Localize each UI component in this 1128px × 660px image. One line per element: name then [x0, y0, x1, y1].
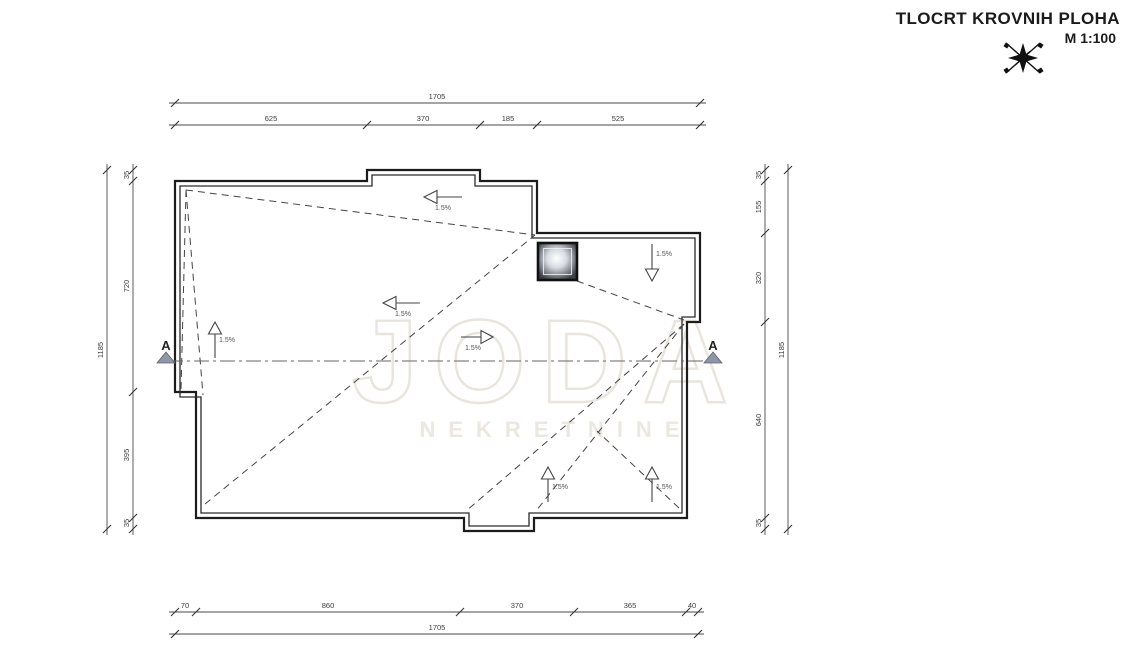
slope-arrow-up-icon: 1.5%	[646, 467, 672, 502]
drawing-scale: M 1:100	[1065, 30, 1117, 46]
skylight	[538, 243, 577, 280]
roof-plan-sheet: JODA NEKRETNINE TLOCRT KROVNIH PLOHA M 1…	[0, 0, 1128, 660]
dim-right-seg: 155	[754, 201, 763, 214]
dimension-bottom: 70 860 370 365 40 1705	[169, 601, 704, 638]
title-block: TLOCRT KROVNIH PLOHA M 1:100	[896, 9, 1120, 73]
slope-label: 1.5%	[435, 205, 451, 212]
slope-arrow-up-icon: 1.5%	[209, 322, 235, 358]
dim-left-seg: 720	[122, 280, 131, 293]
dim-right-seg: 320	[754, 272, 763, 285]
dim-right-seg: 35	[754, 519, 763, 527]
dim-bottom-seg: 40	[688, 601, 696, 610]
section-marker-left-label: A	[161, 338, 171, 353]
dim-left-seg: 35	[122, 171, 131, 179]
slope-arrow-down-icon: 1.5%	[646, 244, 672, 281]
dim-left-seg: 395	[122, 449, 131, 462]
slope-arrow-up-icon: 1.5%	[542, 467, 568, 502]
dim-right-overall: 1185	[777, 342, 786, 358]
slope-label: 1.5%	[552, 484, 568, 491]
section-marker-right-label: A	[708, 338, 718, 353]
valley-line	[181, 190, 186, 390]
dim-right-seg: 35	[754, 171, 763, 179]
dim-bottom-seg: 370	[511, 601, 524, 610]
valley-line	[186, 190, 203, 395]
compass-north-icon	[1004, 43, 1043, 73]
dim-top-overall: 1705	[429, 92, 446, 101]
valley-line	[186, 190, 535, 235]
hip-line	[597, 431, 679, 508]
roof-plan-drawing: JODA NEKRETNINE TLOCRT KROVNIH PLOHA M 1…	[0, 0, 1128, 660]
slope-label: 1.5%	[465, 345, 481, 352]
dim-left-overall: 1185	[96, 342, 105, 358]
section-marker-left-icon	[157, 352, 175, 363]
dim-bottom-seg: 70	[181, 601, 189, 610]
dimension-right: 35 155 320 640 35 1185	[754, 164, 792, 535]
dim-bottom-seg: 365	[624, 601, 637, 610]
dim-top-seg: 185	[502, 114, 515, 123]
slope-label: 1.5%	[219, 337, 235, 344]
dimension-left: 1185 35 720 395 35	[96, 164, 137, 535]
dim-bottom-overall: 1705	[429, 623, 446, 632]
dim-right-seg: 640	[754, 414, 763, 427]
watermark-subtitle: NEKRETNINE	[419, 417, 692, 442]
dim-top-seg: 625	[265, 114, 278, 123]
dim-bottom-seg: 860	[322, 601, 335, 610]
slope-arrow-left-icon: 1.5%	[424, 191, 462, 213]
drawing-title: TLOCRT KROVNIH PLOHA	[896, 9, 1120, 28]
slope-label: 1.5%	[395, 311, 411, 318]
slope-label: 1.5%	[656, 251, 672, 258]
dimension-top: 1705 625 370 185 525	[169, 92, 706, 129]
dim-top-seg: 525	[612, 114, 625, 123]
dim-top-seg: 370	[417, 114, 430, 123]
dim-left-seg: 35	[122, 519, 131, 527]
slope-label: 1.5%	[656, 484, 672, 491]
